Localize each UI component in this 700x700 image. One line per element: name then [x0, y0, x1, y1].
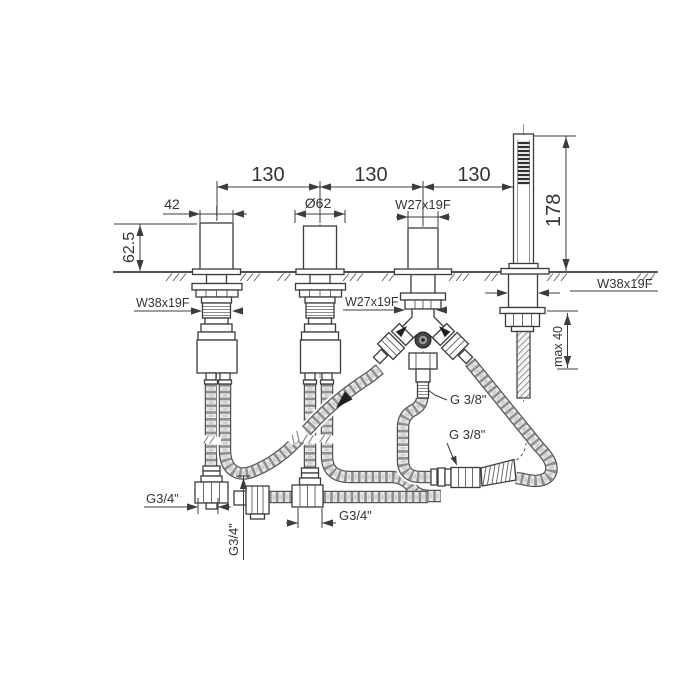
label-g34-left: G3/4" — [146, 491, 179, 506]
supply-fitting-left — [195, 466, 228, 509]
label-g34-right: G3/4" — [339, 508, 372, 523]
dim-label-spacing-1: 130 — [251, 164, 284, 186]
dim-label-handshower-height: 178 — [543, 194, 565, 227]
dimension-supply-right: G3/4" — [286, 508, 372, 528]
label-w27-below: W27x19F — [345, 295, 399, 309]
diverter-valve — [373, 228, 472, 398]
bath-mixer-installation-diagram: 130 130 130 42 Ø62 W27x19F 62.5 178 — [0, 0, 700, 700]
dim-label-spout-diameter: Ø62 — [305, 195, 332, 211]
spout — [296, 226, 346, 384]
dim-label-spacing-2: 130 — [354, 164, 387, 186]
dimension-handle-width: 42 — [163, 196, 247, 222]
label-g38-hose: G 3/8" — [449, 427, 486, 442]
technical-drawing-page: 130 130 130 42 Ø62 W27x19F 62.5 178 — [0, 0, 700, 700]
supply-elbow-center — [234, 486, 269, 519]
dim-label-handle-width: 42 — [164, 196, 180, 212]
shower-hose-union — [431, 460, 516, 488]
left-valve — [192, 223, 242, 384]
dimension-body-height: 62.5 — [114, 224, 197, 271]
label-shower-hose-thread: G 3/8" — [447, 427, 486, 467]
holder-threaded-rod — [517, 332, 530, 399]
hand-shower — [500, 134, 549, 398]
label-w38-left: W38x19F — [136, 296, 190, 310]
label-diverter-outlet-thread: G 3/8" — [428, 390, 487, 407]
dimension-max-deck-thickness: max 40 — [547, 311, 578, 369]
dim-label-body-height: 62.5 — [121, 232, 138, 263]
flex-hose-valve1-to-diverter — [225, 369, 380, 473]
supply-tee-fitting — [292, 468, 323, 507]
dim-label-diverter-thread: W27x19F — [395, 197, 451, 212]
dimension-hole-spacing: 130 130 130 — [217, 164, 513, 226]
dim-label-spacing-3: 130 — [457, 164, 490, 186]
flex-hose-diverter-outlet — [403, 398, 433, 477]
label-max-40: max 40 — [551, 326, 565, 367]
label-g34-center: G3/4" — [226, 523, 241, 556]
label-w38-right: W38x19F — [597, 276, 653, 291]
dimension-handshower-height: 178 — [534, 136, 576, 271]
label-g38-outlet: G 3/8" — [450, 392, 487, 407]
